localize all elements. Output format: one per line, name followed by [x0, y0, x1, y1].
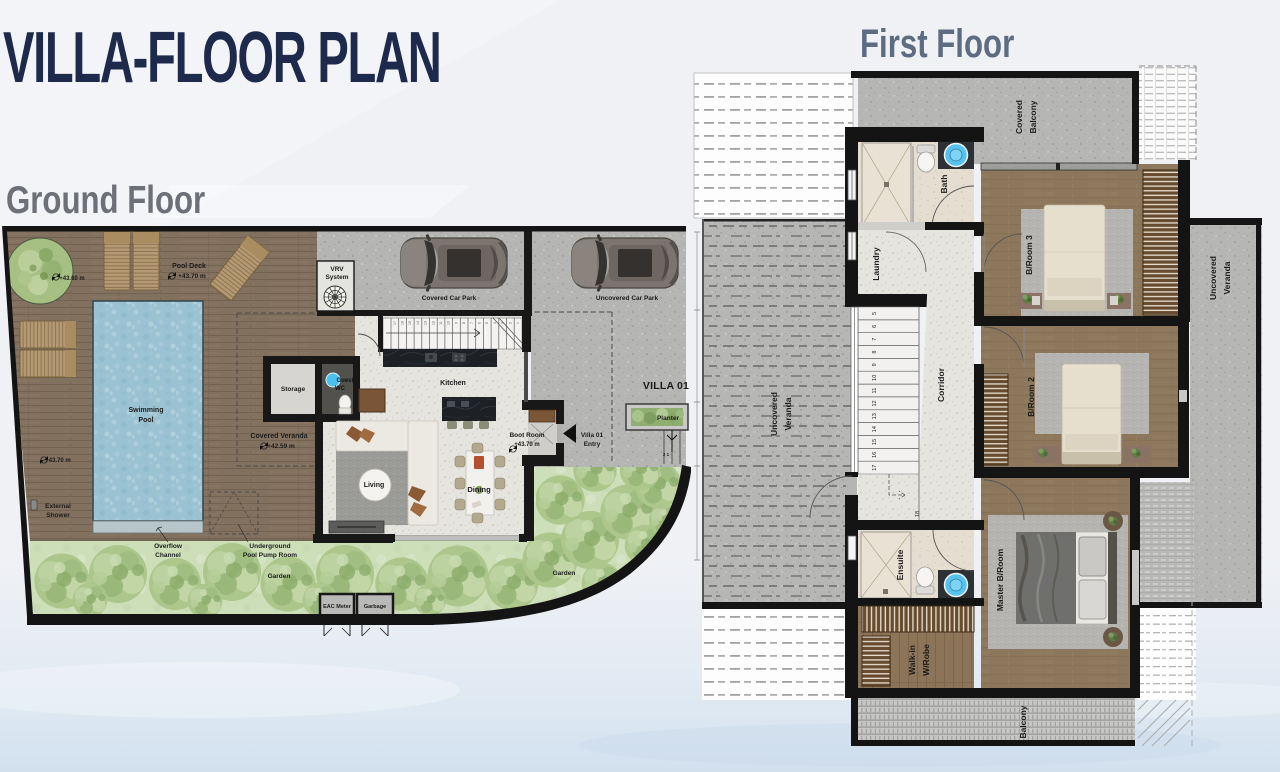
svg-text:Pool Pump Room: Pool Pump Room	[243, 552, 297, 559]
svg-text:8: 8	[462, 322, 466, 324]
svg-text:13: 13	[872, 413, 878, 419]
svg-text:Veranda: Veranda	[783, 397, 793, 430]
svg-text:18: 18	[915, 511, 921, 517]
svg-text:Guest: Guest	[336, 378, 353, 384]
svg-text:VRV: VRV	[330, 266, 344, 273]
svg-text:2: 2	[508, 322, 512, 324]
svg-text:5: 5	[872, 312, 878, 315]
svg-text:5: 5	[485, 322, 489, 324]
svg-text:Underground: Underground	[249, 543, 290, 550]
svg-text:Covered: Covered	[1014, 100, 1024, 134]
svg-text:10: 10	[872, 375, 878, 381]
svg-text:Storage: Storage	[281, 386, 306, 393]
svg-text:6: 6	[478, 322, 482, 324]
svg-text:VILLA-FLOOR PLAN: VILLA-FLOOR PLAN	[3, 17, 440, 97]
svg-text:10: 10	[447, 321, 451, 325]
svg-text:6: 6	[872, 325, 878, 328]
svg-text:Entry: Entry	[584, 441, 601, 448]
svg-text:VILLA 01: VILLA 01	[643, 380, 689, 392]
svg-text:Pool Deck: Pool Deck	[172, 263, 206, 270]
svg-text:Overflow: Overflow	[154, 543, 183, 550]
svg-text:Planter: Planter	[657, 415, 680, 422]
svg-text:System: System	[325, 274, 348, 281]
svg-text:Master B/Room: Master B/Room	[995, 548, 1005, 611]
svg-text:EAC Meter: EAC Meter	[323, 604, 352, 610]
svg-text:1: 1	[516, 322, 520, 324]
svg-text:Uncovered Car Park: Uncovered Car Park	[596, 295, 659, 302]
svg-text:Pool: Pool	[138, 417, 153, 424]
svg-text:Uncovered: Uncovered	[1208, 256, 1218, 300]
svg-text:2 1: 2 1	[663, 452, 670, 457]
svg-text:Veranda: Veranda	[1222, 261, 1232, 294]
svg-text:B/Room 3: B/Room 3	[1024, 235, 1034, 275]
svg-text:7: 7	[470, 322, 474, 324]
svg-text:Bath: Bath	[939, 175, 949, 194]
svg-text:Villa 01: Villa 01	[581, 432, 604, 439]
svg-text:3: 3	[501, 322, 505, 324]
svg-text:12: 12	[872, 400, 878, 406]
svg-text:14: 14	[416, 321, 420, 325]
svg-text:W/Robe: W/Robe	[921, 644, 931, 676]
svg-text:WC: WC	[335, 386, 346, 392]
svg-text:+43.70 m: +43.70 m	[514, 442, 540, 448]
svg-text:Channel: Channel	[155, 552, 181, 559]
svg-text:16: 16	[401, 321, 405, 325]
svg-text:Covered Veranda: Covered Veranda	[250, 433, 307, 440]
svg-text:Garden: Garden	[553, 570, 576, 577]
svg-text:First Floor: First Floor	[860, 21, 1014, 66]
svg-text:Dining: Dining	[467, 485, 491, 494]
svg-text:Kitchen: Kitchen	[440, 380, 466, 387]
svg-text:12: 12	[431, 321, 435, 325]
svg-text:17: 17	[872, 465, 878, 471]
svg-text:Uncovered: Uncovered	[769, 392, 779, 436]
svg-text:Shower: Shower	[46, 512, 70, 519]
svg-text:4: 4	[493, 322, 497, 324]
svg-text:+43.70 m: +43.70 m	[45, 458, 71, 464]
svg-text:Ensuite: Ensuite	[895, 549, 905, 580]
svg-text:13: 13	[424, 321, 428, 325]
svg-text:Boot Room: Boot Room	[509, 432, 544, 439]
svg-text:9: 9	[454, 322, 458, 324]
svg-text:+43.60 m: +43.60 m	[59, 276, 85, 282]
svg-text:17: 17	[393, 321, 397, 325]
svg-text:Living: Living	[364, 482, 385, 489]
svg-text:Ground Floor: Ground Floor	[6, 179, 205, 222]
svg-text:11: 11	[872, 388, 878, 394]
svg-text:Covered Car Park: Covered Car Park	[422, 295, 477, 302]
svg-text:9: 9	[872, 363, 878, 366]
svg-text:Balcony: Balcony	[1018, 705, 1028, 738]
svg-text:Balcony: Balcony	[1028, 100, 1038, 133]
svg-text:Corridor: Corridor	[936, 367, 946, 402]
svg-text:External: External	[45, 503, 71, 510]
svg-text:15: 15	[408, 321, 412, 325]
svg-text:B/Room 2: B/Room 2	[1026, 377, 1036, 417]
svg-text:+43.70 m: +43.70 m	[178, 273, 206, 280]
svg-text:Garbage: Garbage	[364, 604, 386, 610]
svg-text:8: 8	[872, 351, 878, 354]
svg-text:11: 11	[439, 321, 443, 325]
svg-text:15: 15	[872, 439, 878, 445]
svg-text:Laundry: Laundry	[871, 247, 881, 281]
svg-text:16: 16	[872, 452, 878, 458]
svg-text:7: 7	[872, 338, 878, 341]
svg-text:Walk-in: Walk-in	[907, 645, 917, 675]
svg-text:14: 14	[872, 426, 878, 432]
svg-text:Swimming: Swimming	[128, 407, 163, 414]
svg-text:Garden: Garden	[268, 573, 291, 580]
svg-text:+42.59 m: +42.59 m	[267, 443, 295, 450]
